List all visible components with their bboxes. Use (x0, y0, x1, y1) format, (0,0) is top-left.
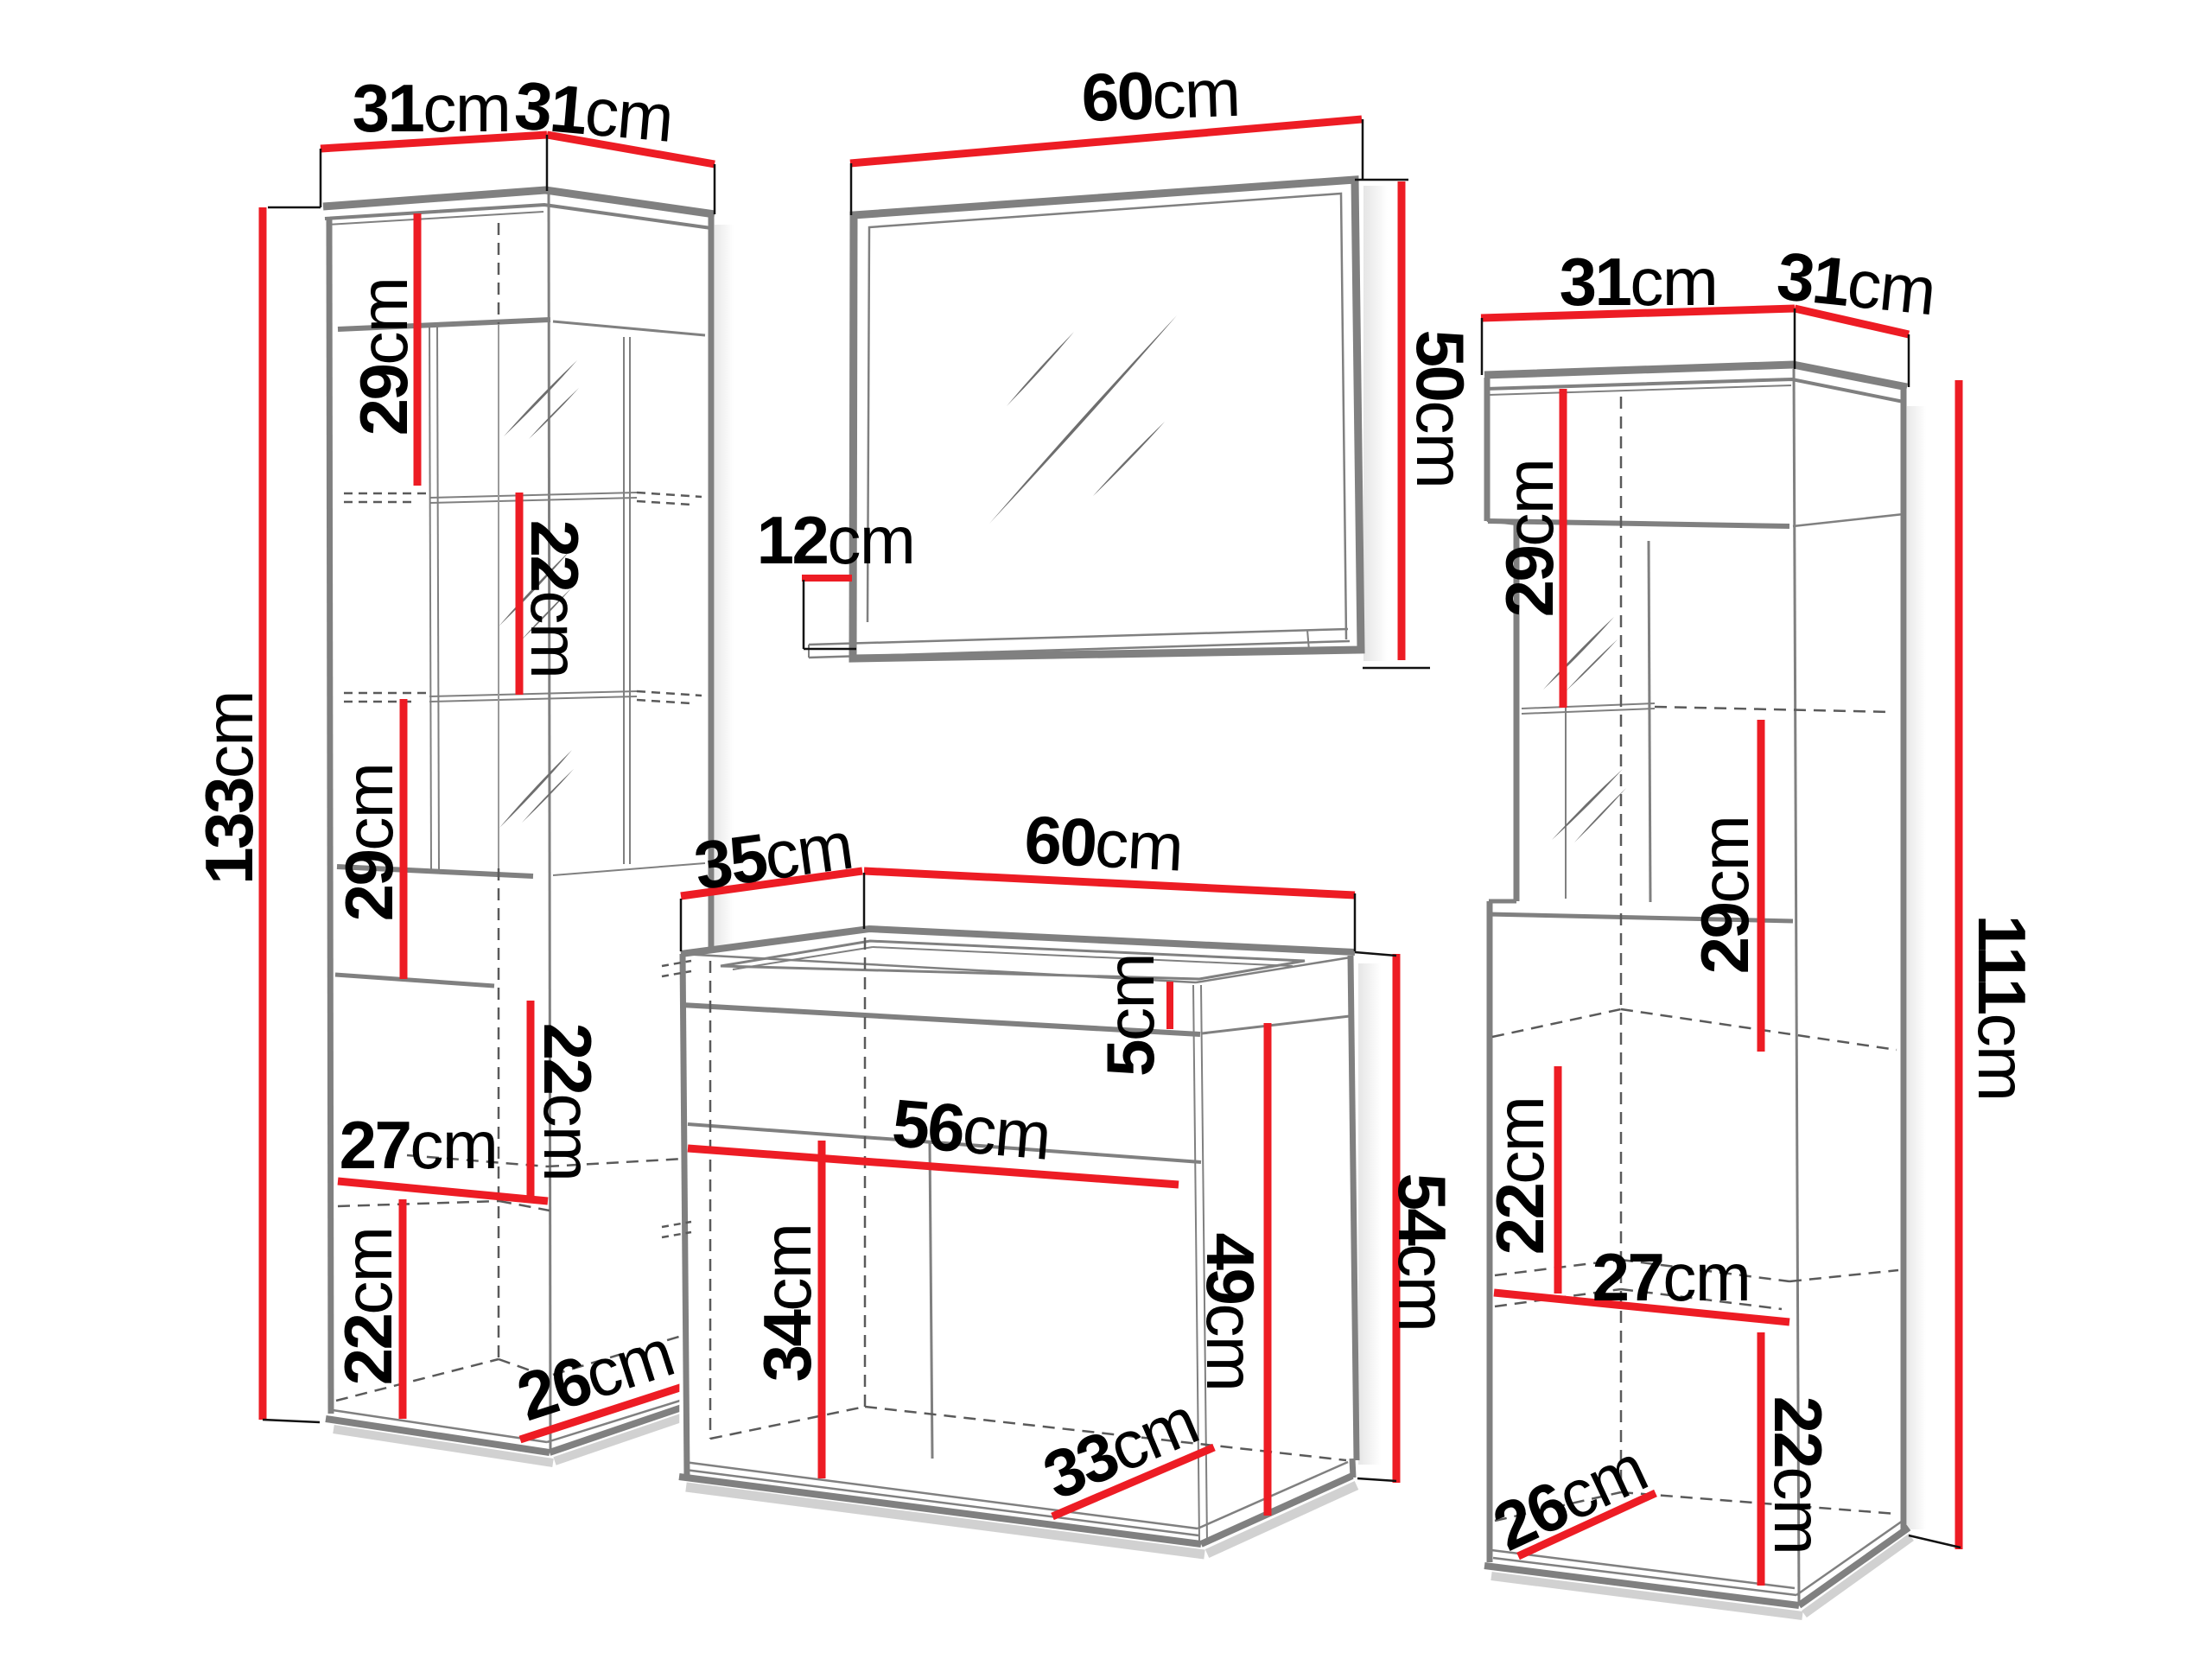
svg-text:22cm: 22cm (530, 1023, 606, 1181)
svg-text:29cm: 29cm (331, 764, 407, 922)
svg-text:50cm: 50cm (1402, 330, 1478, 488)
svg-text:12cm: 12cm (757, 502, 915, 578)
svg-text:5cm: 5cm (1092, 954, 1168, 1077)
svg-text:22cm: 22cm (1482, 1097, 1558, 1255)
svg-text:31cm: 31cm (512, 67, 676, 156)
svg-text:29cm: 29cm (1687, 817, 1763, 975)
svg-text:31cm: 31cm (1560, 244, 1718, 320)
svg-text:27cm: 27cm (340, 1107, 498, 1183)
svg-text:111cm: 111cm (1964, 914, 2040, 1100)
svg-text:22cm: 22cm (517, 520, 593, 678)
svg-text:49cm: 49cm (1192, 1233, 1268, 1391)
svg-text:29cm: 29cm (1491, 460, 1567, 618)
svg-text:27cm: 27cm (1592, 1239, 1751, 1315)
svg-text:31cm: 31cm (353, 70, 511, 146)
svg-text:60cm: 60cm (1080, 54, 1241, 136)
svg-text:60cm: 60cm (1022, 801, 1184, 885)
svg-text:29cm: 29cm (346, 278, 422, 436)
svg-text:133cm: 133cm (191, 691, 267, 885)
svg-text:54cm: 54cm (1384, 1173, 1460, 1332)
svg-text:22cm: 22cm (330, 1228, 406, 1386)
svg-text:22cm: 22cm (1760, 1396, 1836, 1554)
svg-text:34cm: 34cm (749, 1224, 825, 1382)
svg-text:56cm: 56cm (889, 1084, 1053, 1174)
